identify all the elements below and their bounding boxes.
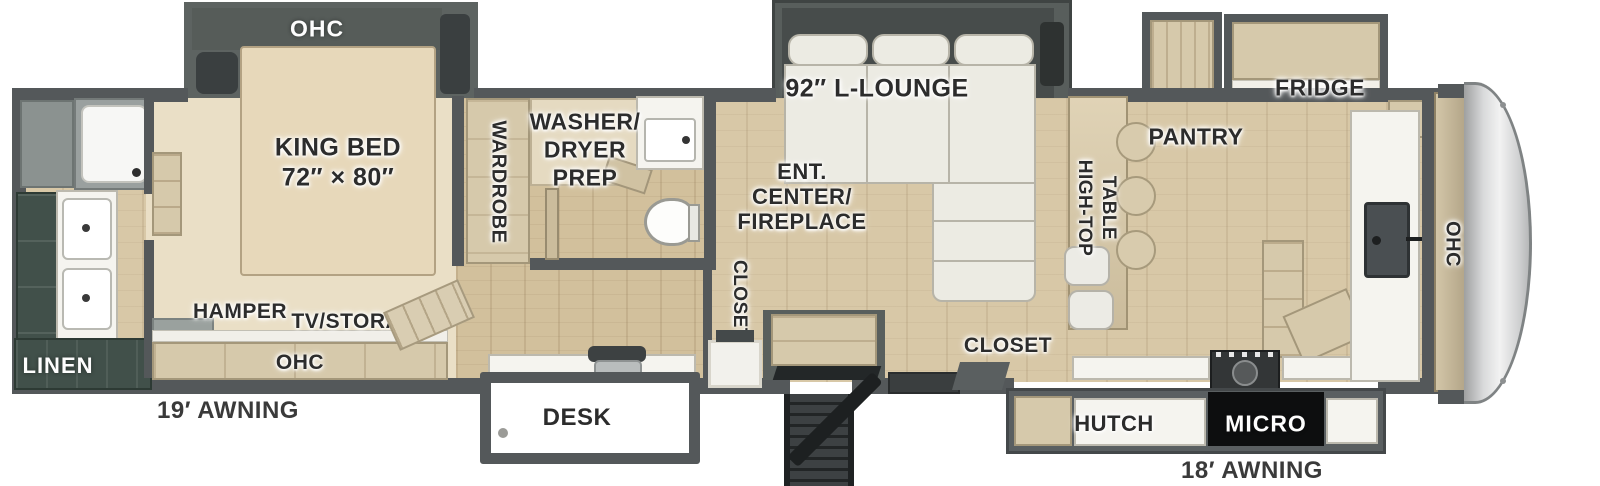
hutch-label: HUTCH: [1074, 411, 1154, 437]
pantry-label: PANTRY: [1149, 124, 1244, 151]
linen-label: LINEN: [23, 353, 94, 379]
ent-center-shelf: [771, 314, 877, 366]
front-ohc-label: OHC: [1441, 221, 1464, 267]
rv-floorplan: OHC LINEN KING BED 72″ × 80″ HAMPER TV/S: [0, 0, 1600, 486]
lounge-back-cushion: [872, 34, 950, 66]
closet-kitchen-label: CLOSET: [964, 334, 1052, 358]
stove-knobs: [1216, 352, 1274, 357]
entry-door-recess: [888, 372, 960, 394]
desk-label: DESK: [543, 404, 612, 432]
awning-rear-label: 19′ AWNING: [157, 397, 299, 425]
front-sink-faucet: [1372, 236, 1381, 245]
lounge-slide-window: [1040, 22, 1064, 86]
kitchen-slide-counter-right: [1326, 398, 1378, 444]
vanity-cabinet-green: [16, 192, 60, 340]
bedroom-right-wall: [452, 96, 464, 266]
lounge-chaise: [932, 182, 1036, 302]
fridge-face: [1232, 22, 1380, 80]
kitchen-counter-left: [1072, 356, 1210, 380]
wardrobe-label: WARDROBE: [487, 121, 510, 244]
lounge-back-cushion: [788, 34, 868, 66]
bed-dresser: [152, 152, 182, 236]
lounge-chaise-seam: [934, 260, 1034, 262]
cap-rivet: [1500, 102, 1506, 108]
mid-nightstand-item: [716, 330, 754, 342]
awning-front-label: 18′ AWNING: [1181, 457, 1323, 485]
shower-drain: [132, 168, 141, 177]
stove-burner: [1232, 360, 1258, 386]
washer-right-wall: [704, 96, 716, 266]
bath-upper-cabinet: [20, 100, 74, 188]
hightop-label-2: TABLE: [1097, 176, 1119, 240]
lounge-label: 92″ L-LOUNGE: [785, 75, 968, 104]
hightop-label-1: HIGH-TOP: [1073, 160, 1095, 257]
bedroom-slide-window-right: [440, 14, 470, 94]
washer-label-1: WASHER/: [530, 109, 641, 136]
fridge-label: FRIDGE: [1275, 75, 1365, 102]
hutch-side-cabinet: [1014, 396, 1072, 446]
washer-door-leaf: [545, 188, 559, 260]
bedroom-ohc-label: OHC: [276, 351, 324, 375]
desk-knob: [498, 428, 508, 438]
mid-nightstand: [708, 340, 762, 388]
washer-label-2: DRYER: [544, 137, 626, 164]
stool: [1116, 230, 1156, 270]
lounge-back-cushion: [954, 34, 1034, 66]
hamper-label: HAMPER: [193, 300, 287, 324]
ent-label-3: FIREPLACE: [737, 209, 866, 235]
table-chair: [1068, 290, 1114, 330]
front-wall: [1422, 92, 1434, 392]
front-sink: [1364, 202, 1410, 278]
washer-faucet-dot: [682, 136, 690, 144]
king-bed-label-2: 72″ × 80″: [282, 164, 395, 193]
cap-rivet: [1500, 378, 1506, 384]
closet-mid-label: CLOSET: [728, 260, 750, 340]
bedroom-slide-window-left: [196, 52, 238, 94]
kitchen-closet-box: [952, 362, 1010, 390]
ent-label-1: ENT.: [777, 159, 827, 185]
toilet-tank: [688, 204, 700, 242]
lounge-chaise-seam: [934, 220, 1034, 222]
faucet-dot-2: [82, 294, 90, 302]
front-sink-handle: [1406, 237, 1422, 241]
micro-label: MICRO: [1225, 411, 1307, 438]
king-bed-label-1: KING BED: [275, 134, 401, 163]
front-cap: [1464, 82, 1532, 404]
stool: [1116, 176, 1156, 216]
bedroom-slide-ohc-label: OHC: [290, 16, 344, 43]
faucet-dot-1: [82, 224, 90, 232]
ent-label-2: CENTER/: [752, 184, 852, 210]
washer-label-3: PREP: [553, 165, 618, 192]
